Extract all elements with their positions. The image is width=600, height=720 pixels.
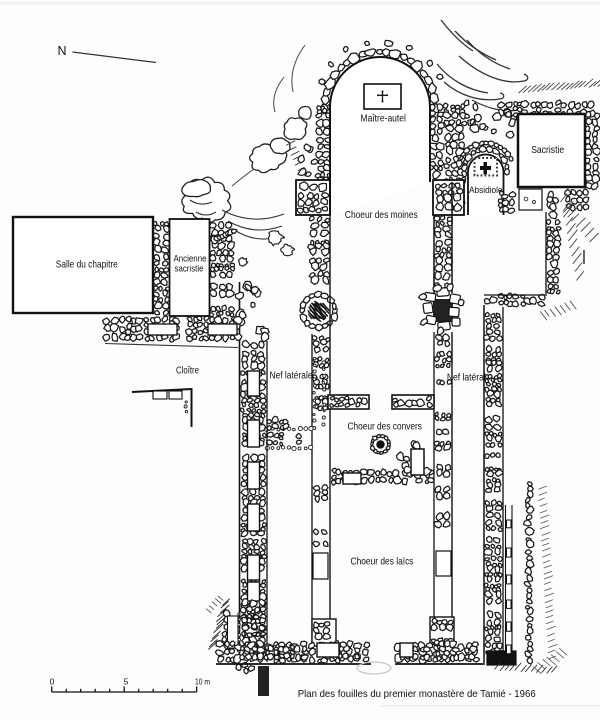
- svg-text:Choeur des convers: Choeur des convers: [347, 421, 422, 433]
- svg-text:Salle du chapitre: Salle du chapitre: [56, 259, 118, 271]
- svg-text:Plan des fouilles du premier m: Plan des fouilles du premier monastère d…: [298, 688, 536, 700]
- svg-text:Cloître: Cloître: [176, 366, 199, 377]
- svg-text:0: 0: [50, 677, 55, 687]
- svg-text:Choeur des laïcs: Choeur des laïcs: [351, 555, 414, 567]
- svg-text:Choeur des moines: Choeur des moines: [345, 209, 418, 221]
- svg-text:N: N: [58, 44, 67, 58]
- svg-text:Absidiole: Absidiole: [469, 185, 503, 196]
- svg-text:5: 5: [124, 677, 129, 687]
- svg-text:10 m: 10 m: [195, 677, 210, 687]
- svg-text:Sacristie: Sacristie: [531, 144, 564, 156]
- svg-text:sacristie: sacristie: [175, 264, 204, 275]
- svg-text:Nef latérale: Nef latérale: [270, 370, 313, 381]
- svg-text:Maître-autel: Maître-autel: [361, 114, 406, 125]
